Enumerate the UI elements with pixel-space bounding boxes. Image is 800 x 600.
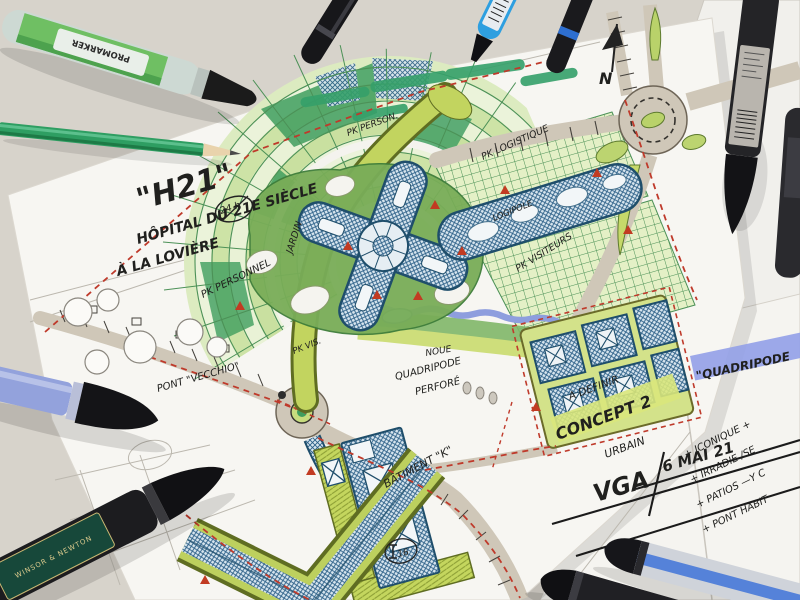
photo-canvas: N 24 h 16 "H21" HÔPITAL DU 21E SIÈCLE À … [0, 0, 800, 600]
north-label: N [599, 69, 613, 88]
